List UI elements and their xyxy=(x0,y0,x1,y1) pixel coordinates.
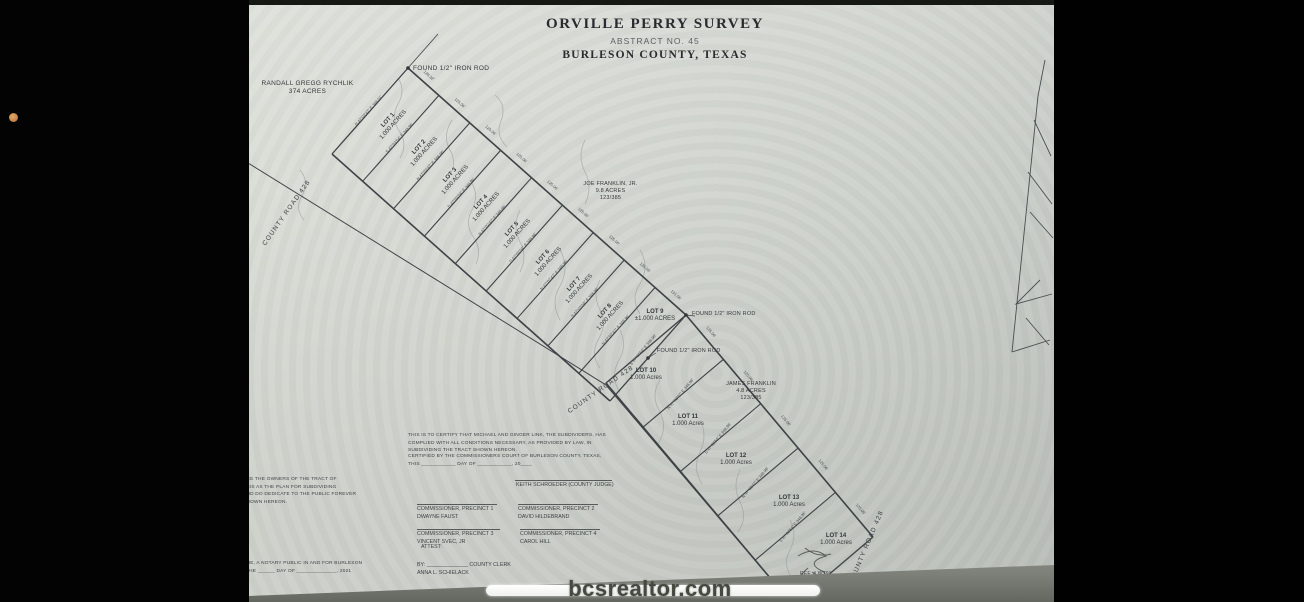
frontage-text: 125.06' xyxy=(817,458,829,471)
notary-text: ME, A NOTARY PUBLIC IN AND FOR BURLESONT… xyxy=(246,561,362,576)
camera-led-dot xyxy=(9,113,18,122)
watermark-text: bcsrealtor.com xyxy=(500,576,800,602)
edge-sketch-line xyxy=(1012,340,1050,352)
contour-squiggle xyxy=(736,470,744,532)
text-line: JOE FRANKLIN, JR. xyxy=(568,181,653,188)
text-line: 374 ACRES xyxy=(255,88,360,96)
text-line: COMMISSIONER, PRECINCT 4 xyxy=(520,531,596,538)
text-line: RANDALL GREGG RYCHLIK xyxy=(255,80,360,88)
bearing-text: S 47°03'54" E 348.96' xyxy=(703,421,732,454)
text-line: THE ______ DAY OF ______________, 2021 xyxy=(246,569,362,575)
bearing-text: S 47°03'54" E 348.96' xyxy=(628,333,657,366)
bearing-text: N 47°02'47" E 348.96' xyxy=(666,377,695,410)
judge-signature-line xyxy=(515,480,612,481)
edge-sketch-line xyxy=(1012,96,1038,352)
strip-left-line xyxy=(606,383,793,602)
lot-label: LOT 141.000 Acres xyxy=(820,533,852,546)
text-line: DAVID HILDEBRAND xyxy=(518,514,594,521)
attest-label: ATTEST: xyxy=(421,544,442,551)
text-line: CAROL HILL xyxy=(520,539,596,546)
precinct3-signature-line xyxy=(417,529,500,530)
lot-label: LOT 131.000 Acres xyxy=(773,495,805,508)
text-line: THIS IS TO CERTIFY THAT MICHAEL AND GING… xyxy=(408,433,606,439)
text-line: SHOWN HEREON. xyxy=(243,500,356,506)
iron-rod-note-mid1: FOUND 1/2" IRON ROD xyxy=(692,311,756,318)
text-line: ME, A NOTARY PUBLIC IN AND FOR BURLESON xyxy=(246,561,362,567)
iron-rod-note-top: FOUND 1/2" IRON ROD xyxy=(413,65,489,73)
lot-label: LOT 111.000 Acres xyxy=(672,414,704,427)
edge-sketch-line xyxy=(1016,280,1052,304)
contour-squiggle xyxy=(655,380,664,444)
frontage-text: 125.06' xyxy=(705,325,717,338)
text-line: AND DO DEDICATE TO THE PUBLIC FOREVER xyxy=(243,492,356,498)
edge-sketch-line xyxy=(1034,120,1051,156)
text-line: THIS AS THE PLAN FOR SUBDIVIDING xyxy=(243,485,356,491)
precinct4-block: COMMISSIONER, PRECINCT 4CAROL HILL xyxy=(520,531,596,547)
plat-title-block: ORVILLE PERRY SURVEY ABSTRACT NO. 45 BUR… xyxy=(520,15,790,62)
text-line: 4.8 ACRES xyxy=(710,388,792,395)
frontage-text: 125.06' xyxy=(453,97,466,110)
frontage-text: 125.06' xyxy=(577,206,590,219)
edge-sketch-line xyxy=(1038,60,1045,96)
contour-squiggle xyxy=(495,95,507,147)
neighbor-northeast: JOE FRANKLIN, JR.9.8 ACRES123/385 xyxy=(568,181,653,202)
precinct2-signature-line xyxy=(518,504,598,505)
text-line: 123/385 xyxy=(568,195,653,202)
frontage-text: 125.06' xyxy=(608,234,621,247)
survey-abstract: ABSTRACT NO. 45 xyxy=(520,36,790,47)
text-line: 9.8 ACRES xyxy=(568,188,653,195)
precinct1-signature-line xyxy=(417,504,497,505)
contour-squiggle xyxy=(468,180,478,264)
county-clerk-block: BY: ______________ COUNTY CLERKANNA L. S… xyxy=(417,562,511,578)
text-line: COMPLIED WITH ALL CONDITIONS NECESSARY, … xyxy=(408,441,606,447)
lot-label: LOT 121.000 Acres xyxy=(720,453,752,466)
text-line: ARE THE OWNERS OF THE TRACT OF xyxy=(243,477,356,483)
left-black-bar xyxy=(0,0,249,602)
text-line: THIS ____________ DAY OF ____________, 2… xyxy=(408,462,602,468)
precinct2-block: COMMISSIONER, PRECINCT 2DAVID HILDEBRAND xyxy=(518,506,594,522)
text-line: COMMISSIONER, PRECINCT 2 xyxy=(518,506,594,513)
frontage-text: 125.06' xyxy=(484,124,497,137)
contour-squiggle xyxy=(516,210,524,272)
iron-rod-note-mid2: FOUND 1/2" IRON ROD xyxy=(657,348,721,355)
frontage-text: 125.06' xyxy=(546,179,559,192)
neighbor-east: JAMES FRANKLIN4.8 ACRES123/385 xyxy=(710,381,792,402)
survey-county: BURLESON COUNTY, TEXAS xyxy=(520,48,790,63)
iron-rod-mark xyxy=(406,66,410,70)
photo-of-survey-plat: LOT 11.000 ACRESN 47°02'47" E 348.01'128… xyxy=(0,0,1304,602)
edge-sketch-line xyxy=(1030,212,1053,238)
neighbor-northwest: RANDALL GREGG RYCHLIK374 ACRES xyxy=(255,80,360,97)
lot-label: LOT 9±1.000 ACRES xyxy=(635,309,675,322)
survey-title: ORVILLE PERRY SURVEY xyxy=(520,15,790,35)
text-line: COMMISSIONER, PRECINCT 1 xyxy=(417,506,493,513)
boundary-extension xyxy=(408,34,438,68)
text-line: BY: ______________ COUNTY CLERK xyxy=(417,562,511,569)
frontage-text: 125.06' xyxy=(515,151,528,164)
text-line: CERTIFIED BY THE COMMISSIONERS COURT OF … xyxy=(408,454,602,460)
edge-sketch-line xyxy=(1028,172,1052,204)
text-line: COMMISSIONER, PRECINCT 3 xyxy=(417,531,493,538)
bearing-text: N 47°02'47" E 348.01' xyxy=(353,94,383,127)
certification-text: THIS IS TO CERTIFY THAT MICHAEL AND GING… xyxy=(408,433,606,456)
frontage-text: 125.06' xyxy=(855,502,867,515)
bearing-text: N 47°02'47" E 348.96' xyxy=(741,466,770,499)
precinct1-block: COMMISSIONER, PRECINCT 1DWAYNE FAUST xyxy=(417,506,493,522)
frontage-text: 125.06' xyxy=(639,261,652,274)
frontage-text: 131.06' xyxy=(670,289,683,302)
right-black-bar xyxy=(1054,0,1304,602)
screen-top-edge xyxy=(249,0,1054,5)
judge-name: KEITH SCHROEDER (COUNTY JUDGE) xyxy=(516,482,614,489)
frontage-text: 125.06' xyxy=(780,414,792,427)
precinct4-signature-line xyxy=(520,529,600,530)
owner-dedication-text: ARE THE OWNERS OF THE TRACT OFTHIS AS TH… xyxy=(243,477,356,508)
text-line: JAMES FRANKLIN xyxy=(710,381,792,388)
text-line: ANNA L. SCHIELACK xyxy=(417,570,511,577)
bearing-text: S 47°03'54" E 348.96' xyxy=(778,510,807,543)
court-certification-text: CERTIFIED BY THE COMMISSIONERS COURT OF … xyxy=(408,454,602,469)
text-line: 123/385 xyxy=(710,395,792,402)
text-line: DWAYNE FAUST xyxy=(417,514,493,521)
